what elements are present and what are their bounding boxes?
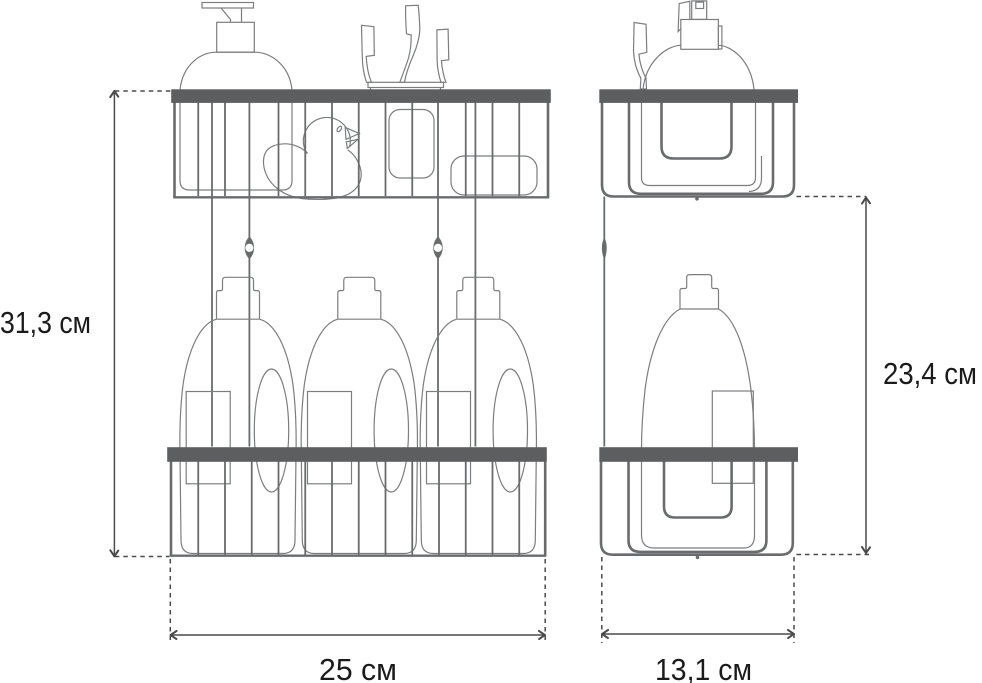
svg-text:13,1 см: 13,1 см [655, 652, 752, 683]
svg-text:25 см: 25 см [319, 652, 397, 683]
svg-text:31,3 см: 31,3 см [0, 305, 91, 340]
svg-text:23,4 см: 23,4 см [883, 356, 977, 391]
